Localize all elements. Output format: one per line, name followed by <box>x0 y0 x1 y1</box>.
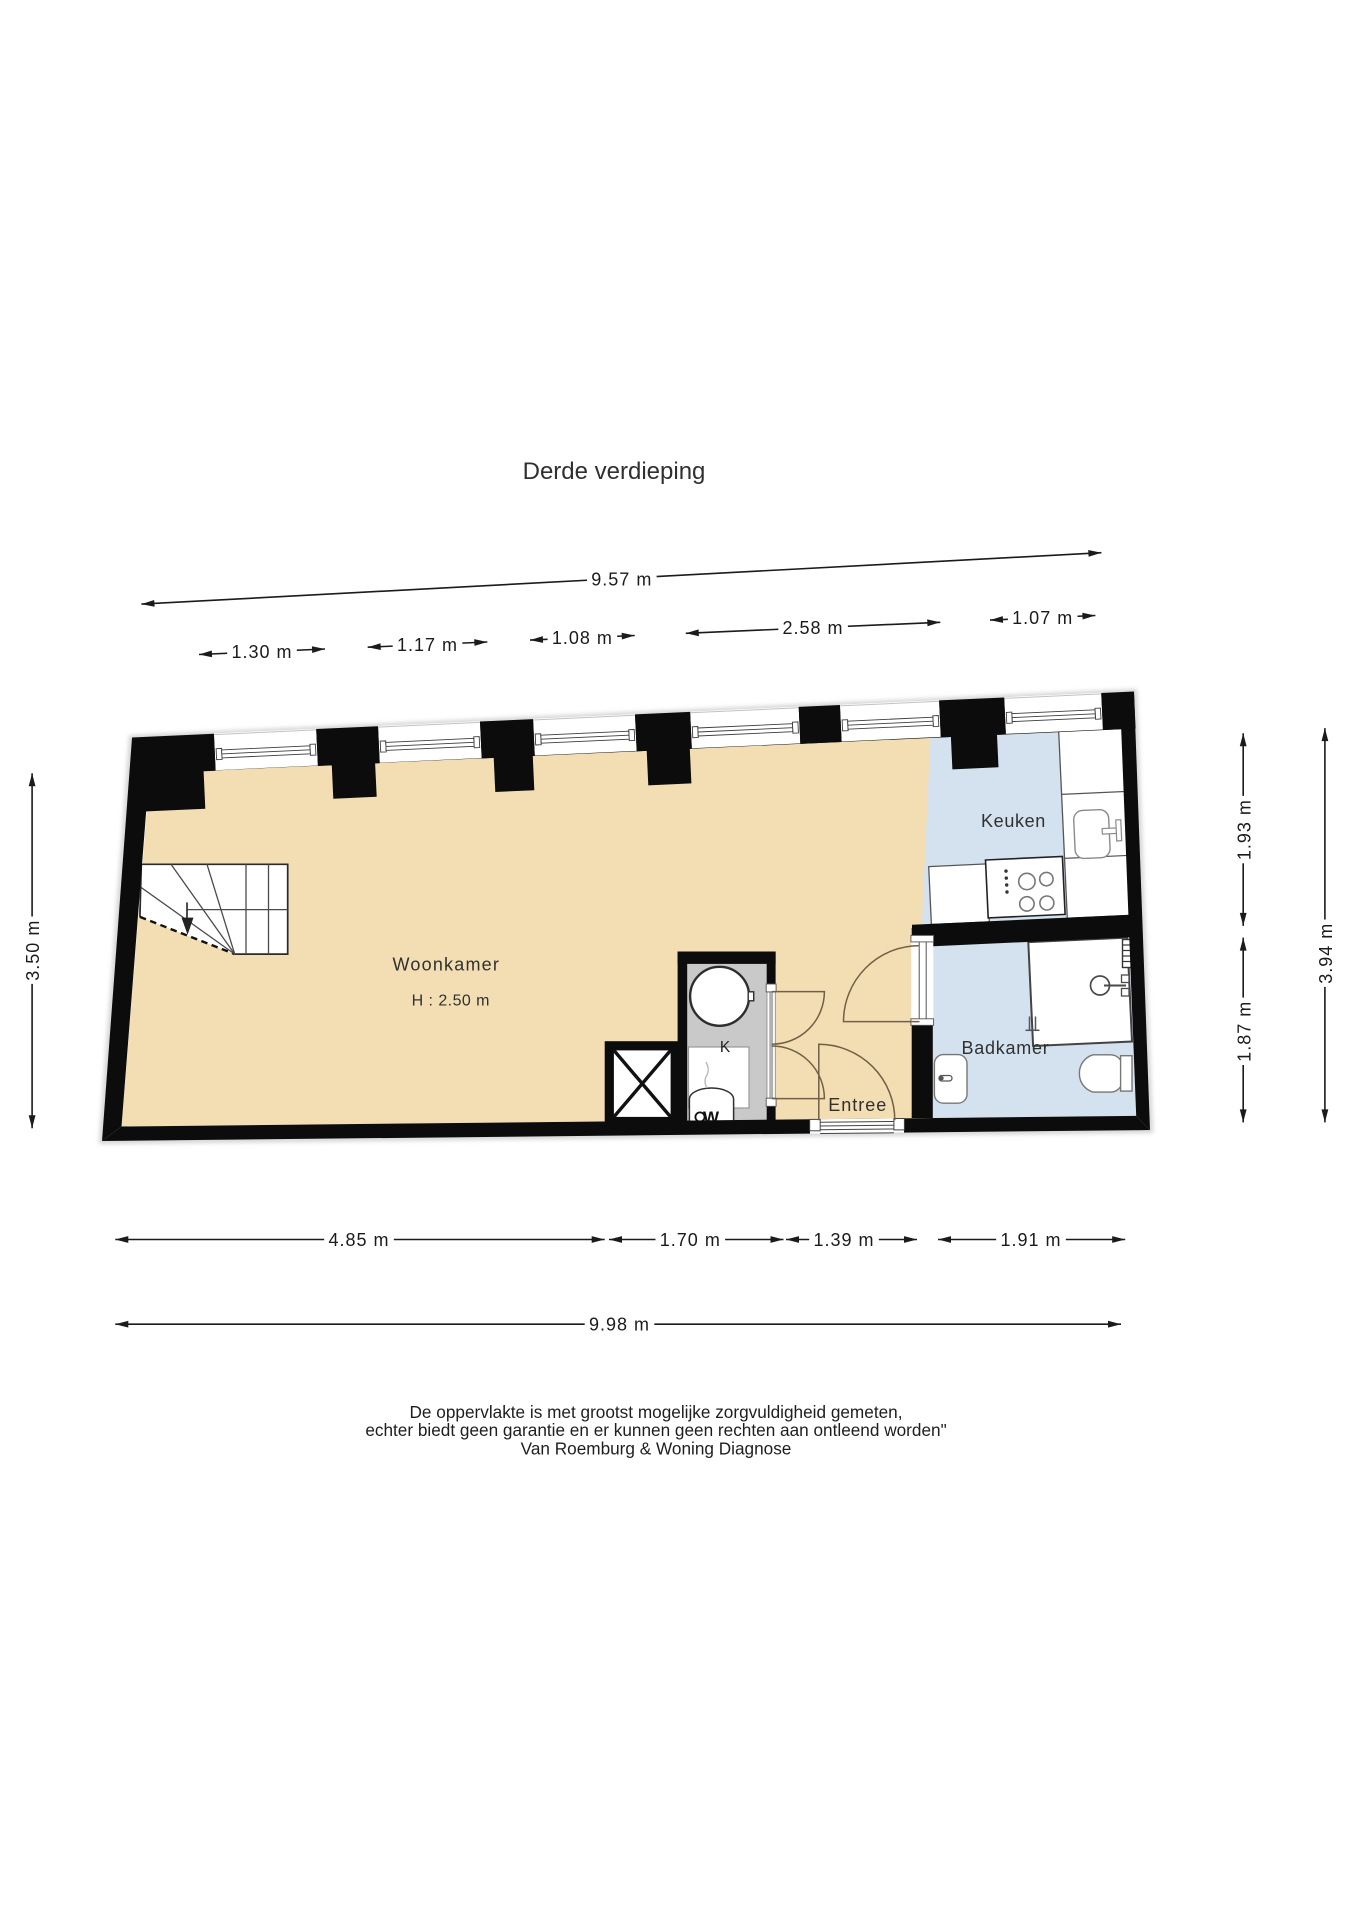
svg-text:Derde verdieping: Derde verdieping <box>523 458 706 485</box>
svg-text:echter biedt geen garantie en: echter biedt geen garantie en er kunnen … <box>365 1420 946 1440</box>
svg-text:1.17 m: 1.17 m <box>397 635 458 655</box>
svg-text:De oppervlakte is met grootst: De oppervlakte is met grootst mogelijke … <box>410 1402 903 1422</box>
svg-text:Woonkamer: Woonkamer <box>393 954 501 974</box>
svg-text:Keuken: Keuken <box>981 811 1046 831</box>
svg-text:K: K <box>720 1039 731 1056</box>
svg-text:4.85 m: 4.85 m <box>328 1230 389 1250</box>
svg-text:3.50 m: 3.50 m <box>23 920 43 981</box>
svg-text:1.39 m: 1.39 m <box>813 1230 874 1250</box>
svg-text:1.70 m: 1.70 m <box>660 1230 721 1250</box>
svg-text:1.93 m: 1.93 m <box>1235 799 1255 860</box>
svg-text:1.87 m: 1.87 m <box>1234 1001 1254 1062</box>
svg-text:1.30 m: 1.30 m <box>231 642 292 662</box>
svg-text:Van Roemburg & Woning Diagnose: Van Roemburg & Woning Diagnose <box>521 1438 792 1458</box>
svg-text:1.91 m: 1.91 m <box>1000 1230 1061 1250</box>
svg-text:Badkamer: Badkamer <box>961 1038 1049 1058</box>
svg-text:9.57 m: 9.57 m <box>591 569 652 589</box>
svg-text:H : 2.50 m: H : 2.50 m <box>412 992 490 1009</box>
svg-text:1.07 m: 1.07 m <box>1012 608 1073 628</box>
svg-text:2.58 m: 2.58 m <box>782 618 843 638</box>
svg-text:1.08 m: 1.08 m <box>552 628 613 648</box>
svg-text:Entree: Entree <box>828 1095 887 1115</box>
svg-text:9.98 m: 9.98 m <box>589 1315 650 1335</box>
svg-text:3.94 m: 3.94 m <box>1316 923 1336 984</box>
